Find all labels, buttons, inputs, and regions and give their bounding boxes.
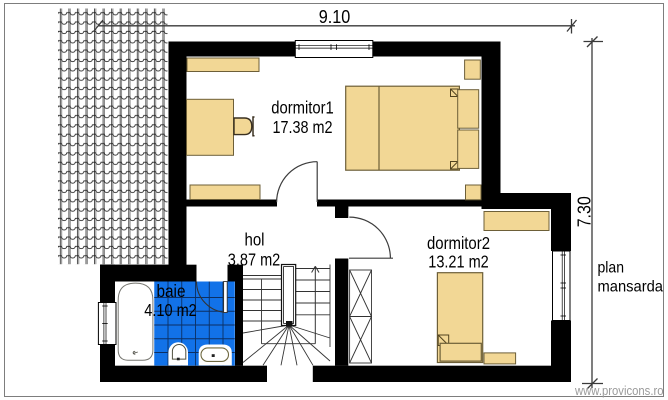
svg-text:baie: baie [157,281,186,301]
svg-text:www.provicons.ro: www.provicons.ro [574,383,663,398]
svg-text:mansarda: mansarda [598,279,664,296]
svg-text:4.10 m2: 4.10 m2 [144,300,197,320]
svg-text:plan: plan [598,260,625,277]
svg-text:13.21 m2: 13.21 m2 [428,252,489,272]
svg-text:17.38 m2: 17.38 m2 [273,117,333,137]
svg-text:dormitor1: dormitor1 [271,98,334,118]
svg-text:3.87 m2: 3.87 m2 [228,250,281,270]
svg-text:hol: hol [245,230,265,250]
svg-text:9.10: 9.10 [319,7,351,27]
svg-text:7.30: 7.30 [575,196,595,227]
svg-text:dormitor2: dormitor2 [427,233,490,253]
